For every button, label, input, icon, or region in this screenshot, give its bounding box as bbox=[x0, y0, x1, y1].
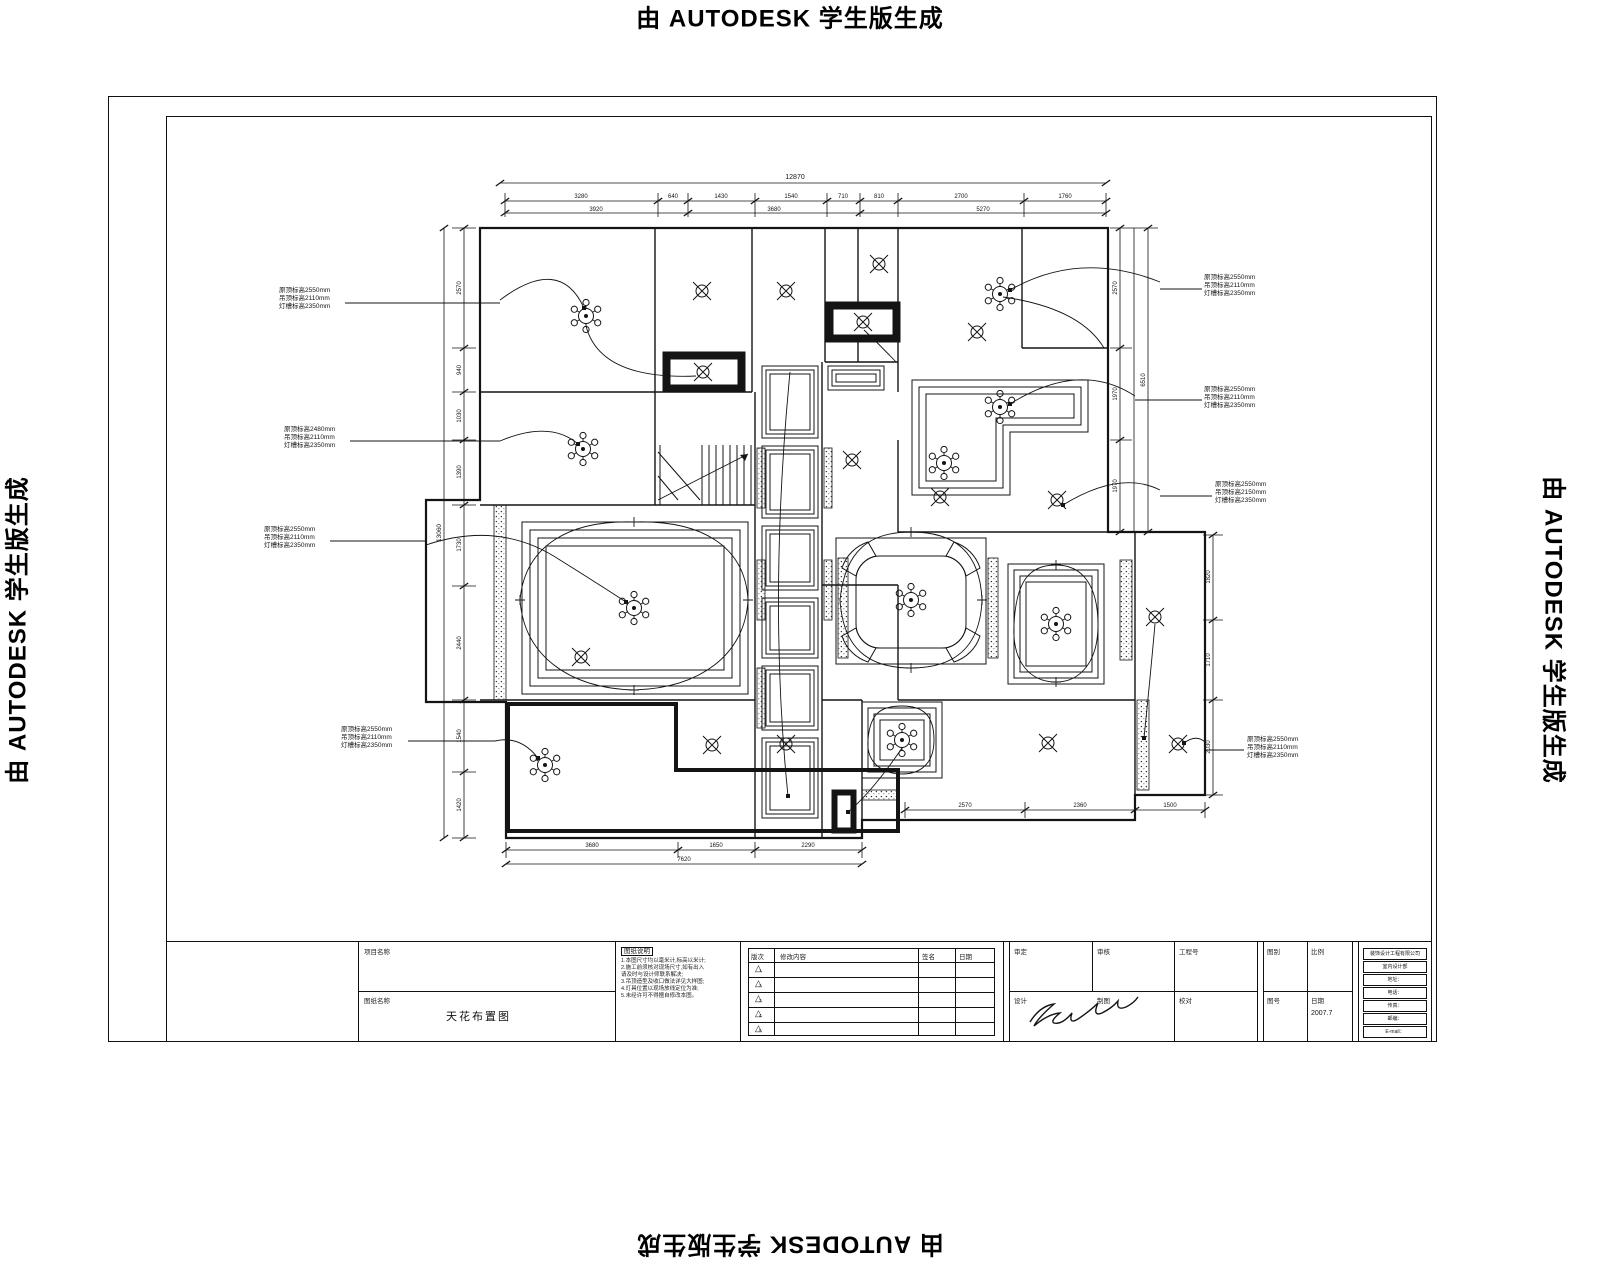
svg-text:3680: 3680 bbox=[585, 843, 599, 849]
svg-text:2290: 2290 bbox=[801, 843, 815, 849]
svg-text:640: 640 bbox=[668, 194, 679, 200]
svg-text:6510: 6510 bbox=[1141, 373, 1147, 387]
cad-sheet-page: { "watermark": { "text": "由 AUTODESK 学生版… bbox=[0, 0, 1600, 1280]
svg-text:7620: 7620 bbox=[677, 857, 691, 863]
svg-text:1760: 1760 bbox=[1058, 194, 1072, 200]
ceiling-annotation: 原顶标高2480mm 吊顶标高2110mm 灯槽标高2350mm bbox=[284, 426, 335, 450]
svg-text:3280: 3280 bbox=[574, 194, 588, 200]
svg-text:2030: 2030 bbox=[1206, 740, 1212, 754]
svg-text:2360: 2360 bbox=[1073, 803, 1087, 809]
svg-text:2570: 2570 bbox=[1113, 281, 1119, 295]
svg-text:2700: 2700 bbox=[954, 194, 968, 200]
svg-text:1500: 1500 bbox=[1163, 803, 1177, 809]
svg-text:1970: 1970 bbox=[1113, 479, 1119, 493]
beam-boxes bbox=[663, 302, 900, 833]
staircase bbox=[658, 445, 751, 505]
ceiling-annotation: 原顶标高2550mm 吊顶标高2150mm 灯槽标高2350mm bbox=[1215, 481, 1266, 505]
drawing-title: 天花布置图 bbox=[446, 1008, 511, 1024]
ceiling-plan-drawing: 12870 3280 640 1430 1540 710 810 2700 17… bbox=[0, 0, 1600, 1280]
svg-text:940: 940 bbox=[457, 364, 463, 375]
title-block: 项目名称 图纸名称 天花布置图 图纸说明 1.本图尺寸均以毫米计,标高以米计; … bbox=[166, 941, 1432, 1041]
ceiling-annotation: 原顶标高2550mm 吊顶标高2110mm 灯槽标高2350mm bbox=[1204, 274, 1255, 298]
notes-cell: 图纸说明 1.本图尺寸均以毫米计,标高以米计; 2.施工前须核对现场尺寸,如有出… bbox=[621, 947, 737, 1000]
ceiling-annotation: 原顶标高2550mm 吊顶标高2110mm 灯槽标高2350mm bbox=[341, 726, 392, 750]
svg-text:1030: 1030 bbox=[457, 409, 463, 423]
svg-text:1730: 1730 bbox=[457, 538, 463, 552]
dimension-lines: 12870 3280 640 1430 1540 710 810 2700 17… bbox=[436, 174, 1223, 867]
svg-text:1540: 1540 bbox=[784, 194, 798, 200]
svg-text:1430: 1430 bbox=[714, 194, 728, 200]
svg-text:810: 810 bbox=[874, 194, 885, 200]
svg-text:5270: 5270 bbox=[976, 207, 990, 213]
svg-text:710: 710 bbox=[838, 194, 849, 200]
corridor-coffer-panels bbox=[762, 366, 818, 818]
svg-text:3920: 3920 bbox=[589, 207, 603, 213]
svg-text:1650: 1650 bbox=[709, 843, 723, 849]
drawing-name-label: 图纸名称 bbox=[364, 995, 390, 1005]
svg-text:3680: 3680 bbox=[767, 207, 781, 213]
svg-text:2570: 2570 bbox=[958, 803, 972, 809]
ceiling-annotation: 原顶标高2550mm 吊顶标高2110mm 灯槽标高2350mm bbox=[1204, 386, 1255, 410]
ceiling-annotation: 原顶标高2550mm 吊顶标高2110mm 灯槽标高2350mm bbox=[264, 526, 315, 550]
svg-text:13060: 13060 bbox=[436, 524, 443, 542]
svg-text:2440: 2440 bbox=[457, 636, 463, 650]
svg-text:1420: 1420 bbox=[457, 798, 463, 812]
outer-walls bbox=[426, 228, 1205, 838]
ceiling-annotation: 原顶标高2550mm 吊顶标高2110mm 灯槽标高2350mm bbox=[1247, 736, 1298, 760]
ceiling-annotation: 原顶标高2550mm 吊顶标高2110mm 灯槽标高2350mm bbox=[279, 287, 330, 311]
svg-text:1390: 1390 bbox=[457, 465, 463, 479]
svg-text:1710: 1710 bbox=[1206, 653, 1212, 667]
notes-header: 图纸说明 bbox=[621, 947, 653, 956]
project-name-label: 项目名称 bbox=[364, 946, 390, 956]
svg-text:12870: 12870 bbox=[785, 174, 805, 181]
svg-text:1970: 1970 bbox=[1113, 387, 1119, 401]
svg-text:1820: 1820 bbox=[1206, 570, 1212, 584]
leader-curves bbox=[426, 268, 1205, 814]
svg-text:2570: 2570 bbox=[457, 281, 463, 295]
